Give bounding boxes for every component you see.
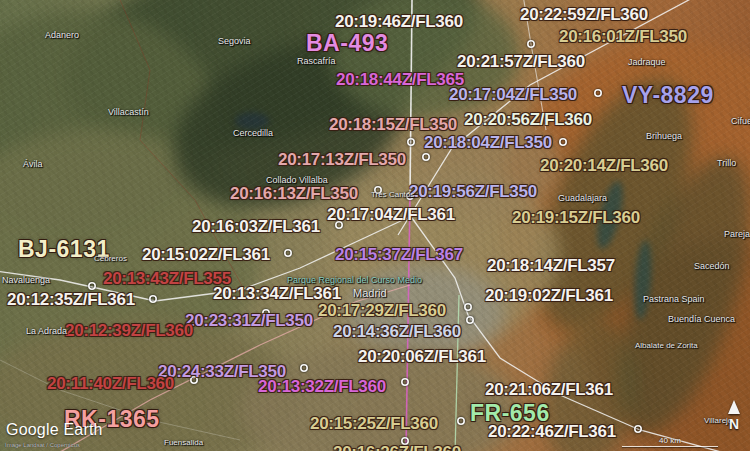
- waypoint-label: 20:20:06Z/FL361: [358, 347, 486, 367]
- place-label: Collado Villalba: [266, 175, 328, 185]
- waypoint-label: 20:21:57Z/FL360: [457, 52, 585, 72]
- waypoint-label: 20:18:15Z/FL350: [329, 115, 457, 135]
- waypoint-label: 20:15:02Z/FL361: [142, 245, 270, 265]
- place-label: Guadalajara: [558, 193, 607, 203]
- place-label: Segovia: [218, 36, 251, 46]
- waypoint-marker[interactable]: [301, 365, 307, 371]
- place-label: Albalate de Zorita: [635, 341, 698, 350]
- waypoint-label: 20:11:40Z/FL360: [47, 374, 174, 394]
- place-label: Madrid: [353, 287, 387, 299]
- place-label: Trillo: [717, 158, 736, 168]
- place-label: Tres Cantos: [371, 190, 414, 199]
- waypoint-label: 20:13:32Z/FL360: [258, 377, 386, 397]
- waypoint-label: 20:14:36Z/FL360: [333, 322, 461, 342]
- place-label: Cifuentes: [731, 116, 750, 126]
- attribution-text: Image Landsat / Copernicus: [5, 442, 80, 448]
- waypoint-label: 20:17:29Z/FL360: [318, 301, 446, 321]
- place-label: Navaluenga: [2, 275, 50, 285]
- place-label: Pareja: [724, 229, 750, 239]
- waypoint-label: 20:16:01Z/FL350: [559, 27, 687, 47]
- waypoint-label: 20:12:35Z/FL361: [7, 290, 135, 310]
- place-label: Brihuega: [646, 131, 682, 141]
- waypoint-label: 20:19:46Z/FL360: [335, 12, 463, 32]
- flight-callsign-label: FR-656: [470, 400, 550, 427]
- scale-bar: 40 km: [622, 436, 718, 447]
- flight-callsign-label: BA-493: [306, 30, 388, 57]
- waypoint-label: 20:20:14Z/FL360: [540, 156, 668, 176]
- compass-north-label: N: [722, 416, 746, 432]
- waypoint-label: 20:12:39Z/FL360: [65, 321, 193, 341]
- waypoint-label: 20:17:13Z/FL350: [278, 150, 406, 170]
- waypoint-label: 20:17:04Z/FL350: [449, 85, 577, 105]
- waypoint-label: 20:16:13Z/FL350: [230, 184, 358, 204]
- waypoint-marker[interactable]: [423, 154, 429, 160]
- waypoint-marker[interactable]: [150, 296, 156, 302]
- place-label: Buendía Cuenca: [668, 314, 735, 324]
- waypoint-label: 20:19:02Z/FL361: [485, 286, 613, 306]
- place-label: Pastrana Spain: [643, 294, 705, 304]
- waypoint-label: 20:18:44Z/FL365: [336, 70, 464, 90]
- waypoint-label: 20:20:56Z/FL360: [464, 110, 592, 130]
- scale-label: 40 km: [622, 436, 718, 445]
- waypoint-label: 20:22:59Z/FL360: [520, 5, 648, 25]
- waypoint-label: 20:19:56Z/FL350: [409, 182, 537, 202]
- waypoint-label: 20:21:06Z/FL361: [485, 380, 613, 400]
- flight-track-line: [455, 295, 459, 451]
- place-label: Cercedilla: [233, 128, 273, 138]
- waypoint-label: 20:19:15Z/FL360: [512, 208, 640, 228]
- place-label: Parque Regional del Curso Medio: [287, 275, 422, 285]
- waypoint-label: 20:18:04Z/FL350: [424, 133, 552, 153]
- place-label: Villacastín: [108, 107, 149, 117]
- place-label: Fuensalida: [164, 438, 203, 447]
- place-label: Ávila: [23, 159, 43, 169]
- google-earth-logo: Google Earth: [6, 421, 103, 439]
- compass[interactable]: N: [722, 400, 746, 442]
- place-label: Cebreros: [94, 254, 127, 263]
- waypoint-label: 20:23:31Z/FL350: [185, 311, 313, 331]
- place-label: Adanero: [45, 30, 79, 40]
- waypoint-marker[interactable]: [458, 418, 464, 424]
- waypoint-marker[interactable]: [560, 139, 566, 145]
- scale-line: [622, 446, 718, 447]
- place-label: La Adrada: [26, 326, 67, 336]
- waypoint-label: 20:16:26Z/FL360: [333, 443, 461, 451]
- flight-callsign-label: VY-8829: [622, 82, 714, 109]
- place-label: Sacedón: [694, 261, 730, 271]
- waypoint-marker[interactable]: [285, 250, 291, 256]
- place-label: Jadraque: [628, 57, 666, 67]
- place-label: Rascafría: [297, 56, 336, 66]
- waypoint-label: 20:13:43Z/FL355: [103, 269, 231, 289]
- waypoint-label: 20:17:04Z/FL361: [327, 205, 455, 225]
- waypoint-label: 20:15:25Z/FL360: [310, 414, 438, 434]
- map-canvas[interactable]: 20:19:46Z/FL36020:22:59Z/FL36020:16:01Z/…: [0, 0, 750, 451]
- waypoint-marker[interactable]: [595, 90, 601, 96]
- waypoint-label: 20:18:14Z/FL357: [487, 256, 615, 276]
- waypoint-label: 20:15:37Z/FL367: [335, 245, 463, 265]
- north-arrow-icon: [728, 400, 740, 414]
- waypoint-label: 20:16:03Z/FL361: [192, 217, 320, 237]
